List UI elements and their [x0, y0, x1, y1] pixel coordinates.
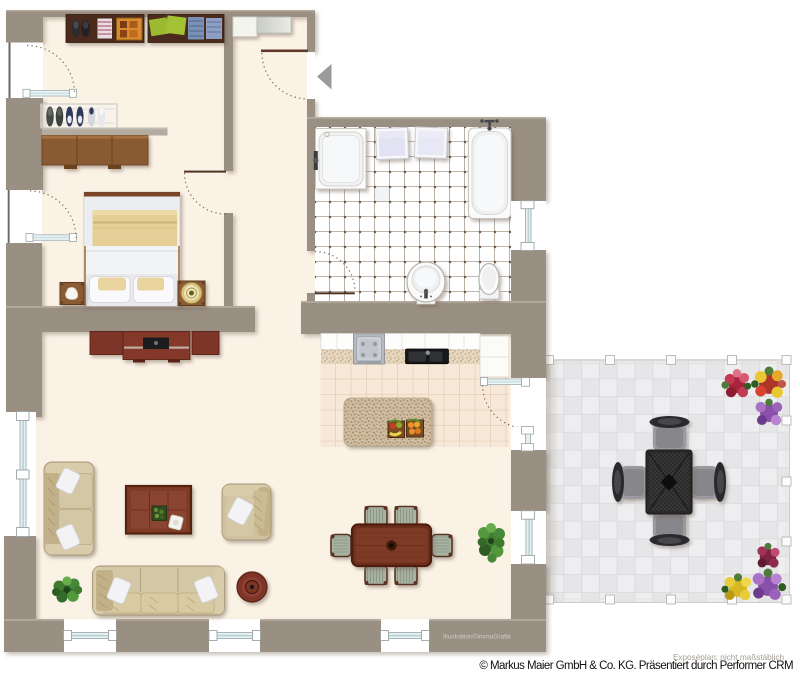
svg-text:Illustration©immoGrafik: Illustration©immoGrafik: [443, 633, 511, 641]
svg-text:© Markus Maier GmbH & Co. KG.: © Markus Maier GmbH & Co. KG. Präsentier…: [479, 660, 793, 672]
